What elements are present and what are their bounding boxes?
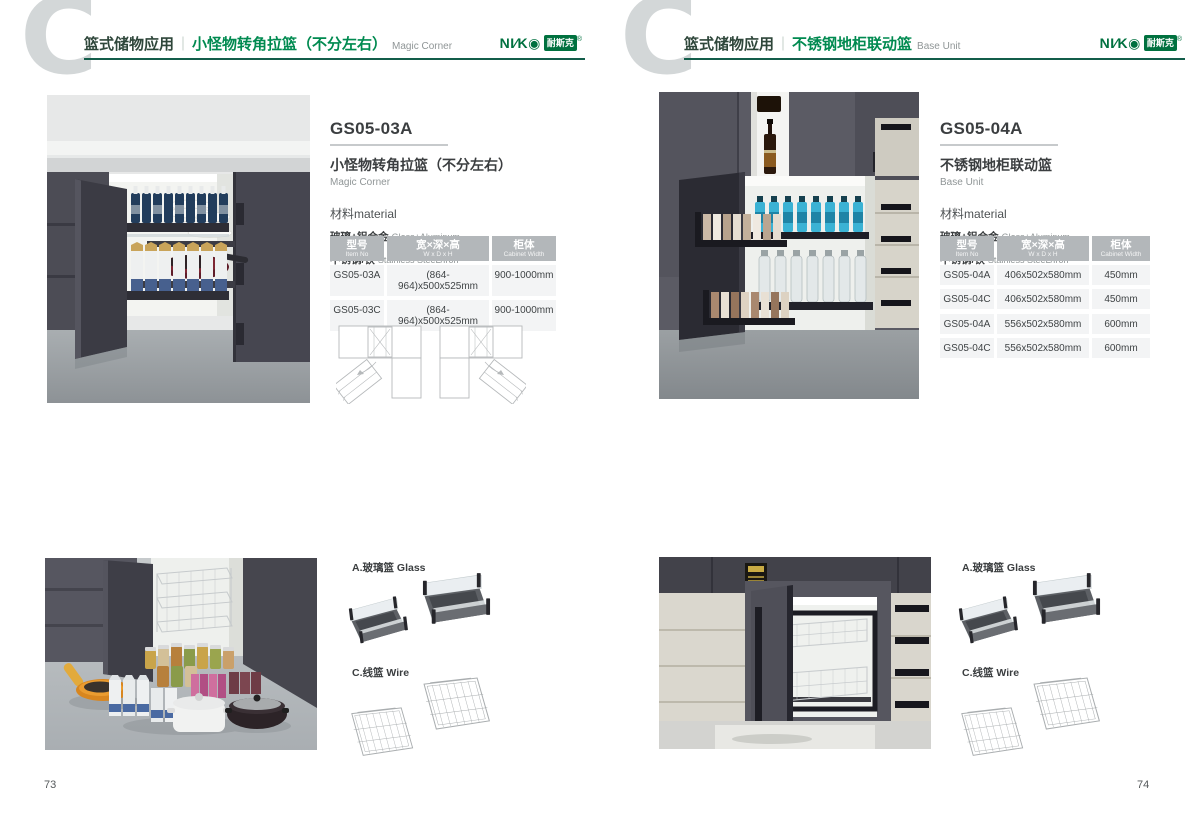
header-category: 篮式储物应用 — [684, 36, 774, 53]
model-underline — [940, 144, 1058, 146]
header-title-cn: 小怪物转角拉篮（不分左右） — [192, 36, 387, 53]
brand-logo-chinese: 耐斯克 — [544, 35, 577, 51]
table-row: GS05-04C 556x502x580mm 600mm — [940, 338, 1150, 358]
table-cell: 406x502x580mm — [997, 289, 1089, 309]
dark-boxes — [229, 672, 261, 694]
brand-logo: NI∕K◉耐斯克® — [1052, 35, 1182, 53]
table-header-cell: 型号Item No — [330, 236, 384, 261]
glass-basket-images — [344, 572, 494, 652]
product-model: GS05-04A — [940, 119, 1180, 139]
table-cell: GS05-04A — [940, 265, 994, 285]
header-title-cn: 不锈钢地柜联动篮 — [792, 36, 912, 53]
brand-logo-chinese: 耐斯克 — [1144, 35, 1177, 51]
material-heading: 材料material — [940, 205, 1180, 222]
header-title-en: Magic Corner — [392, 41, 452, 52]
table-header-cell: 宽×深×高W x D x H — [997, 236, 1089, 261]
page-header: 篮式储物应用｜小怪物转角拉篮（不分左右）Magic Corner — [84, 33, 452, 54]
table-cell: 556x502x580mm — [997, 338, 1089, 358]
table-header-cell: 柜体Cabinet Width — [1092, 236, 1150, 261]
table-cell: GS05-04A — [940, 314, 994, 334]
table-header-cell: 柜体Cabinet Width — [492, 236, 556, 261]
table-cell: 600mm — [1092, 314, 1150, 334]
table-header-cell: 宽×深×高W x D x H — [387, 236, 489, 261]
product-name-en: Base Unit — [940, 177, 1180, 188]
page-number: 73 — [44, 779, 56, 791]
stone-drawers-right — [891, 593, 931, 721]
table-cell: 556x502x580mm — [997, 314, 1089, 334]
open-door — [75, 179, 127, 359]
registered-mark: ® — [577, 36, 582, 43]
table-row: GS05-04A 556x502x580mm 600mm — [940, 314, 1150, 334]
table-row: GS05-04C 406x502x580mm 450mm — [940, 289, 1150, 309]
table-header-cell: 型号Item No — [940, 236, 994, 261]
wire-basket-images — [954, 676, 1104, 768]
product-name-cn: 不锈钢地柜联动篮 — [940, 155, 1180, 175]
header-divider: ｜ — [776, 36, 790, 52]
material-heading: 材料material — [330, 205, 570, 222]
stone-drawers-left — [659, 593, 745, 721]
table-header-row: 型号Item No 宽×深×高W x D x H 柜体Cabinet Width — [330, 236, 556, 261]
corner-diagram-right-version — [436, 320, 526, 404]
scene-photo-corner-baskets — [45, 558, 317, 750]
model-underline — [330, 144, 448, 146]
door-rack-lower — [703, 290, 795, 325]
table-cell: 450mm — [1092, 265, 1150, 285]
product-name-en: Magic Corner — [330, 177, 570, 188]
catalog-page-left: C 篮式储物应用｜小怪物转角拉篮（不分左右）Magic Corner NI∕K◉… — [0, 0, 600, 820]
catalog-page-right: C 篮式储物应用｜不锈钢地柜联动篮Base Unit NI∕K◉耐斯克® — [600, 0, 1200, 820]
glass-basket-images — [954, 572, 1104, 652]
brand-logo: NI∕K◉耐斯克® — [452, 35, 582, 53]
table-cell: GS05-03A — [330, 265, 384, 296]
corner-diagram-left-version — [336, 320, 426, 404]
product-photo-base-unit — [659, 92, 919, 399]
product-model: GS05-03A — [330, 119, 570, 139]
header-title-en: Base Unit — [917, 41, 960, 52]
door-rack-upper — [695, 212, 787, 247]
table-cell: 600mm — [1092, 338, 1150, 358]
product-name-cn: 小怪物转角拉篮（不分左右） — [330, 155, 570, 175]
table-cell: (864-964)x500x525mm — [387, 265, 489, 296]
page-header: 篮式储物应用｜不锈钢地柜联动篮Base Unit — [684, 33, 960, 54]
registered-mark: ® — [1177, 36, 1182, 43]
scene-photo-base-unit — [659, 557, 931, 749]
table-cell: 450mm — [1092, 289, 1150, 309]
product-photo-magic-corner — [47, 95, 310, 403]
spec-table: 型号Item No 宽×深×高W x D x H 柜体Cabinet Width… — [940, 236, 1150, 362]
header-category: 篮式储物应用 — [84, 36, 174, 53]
table-cell: 900-1000mm — [492, 265, 556, 296]
header-rule — [84, 58, 585, 60]
stone-drawers — [875, 118, 919, 328]
table-cell: GS05-04C — [940, 289, 994, 309]
page-number: 74 — [1137, 779, 1149, 791]
wire-basket-images — [344, 676, 494, 768]
table-cell: 406x502x580mm — [997, 265, 1089, 285]
table-row: GS05-04A 406x502x580mm 450mm — [940, 265, 1150, 285]
table-row: GS05-03A (864-964)x500x525mm 900-1000mm — [330, 265, 556, 296]
header-divider: ｜ — [176, 36, 190, 52]
header-rule — [684, 58, 1185, 60]
table-cell: GS05-04C — [940, 338, 994, 358]
brand-logo-latin: NI∕K◉ — [1100, 35, 1141, 51]
table-header-row: 型号Item No 宽×深×高W x D x H 柜体Cabinet Width — [940, 236, 1150, 261]
brand-logo-latin: NI∕K◉ — [500, 35, 541, 51]
